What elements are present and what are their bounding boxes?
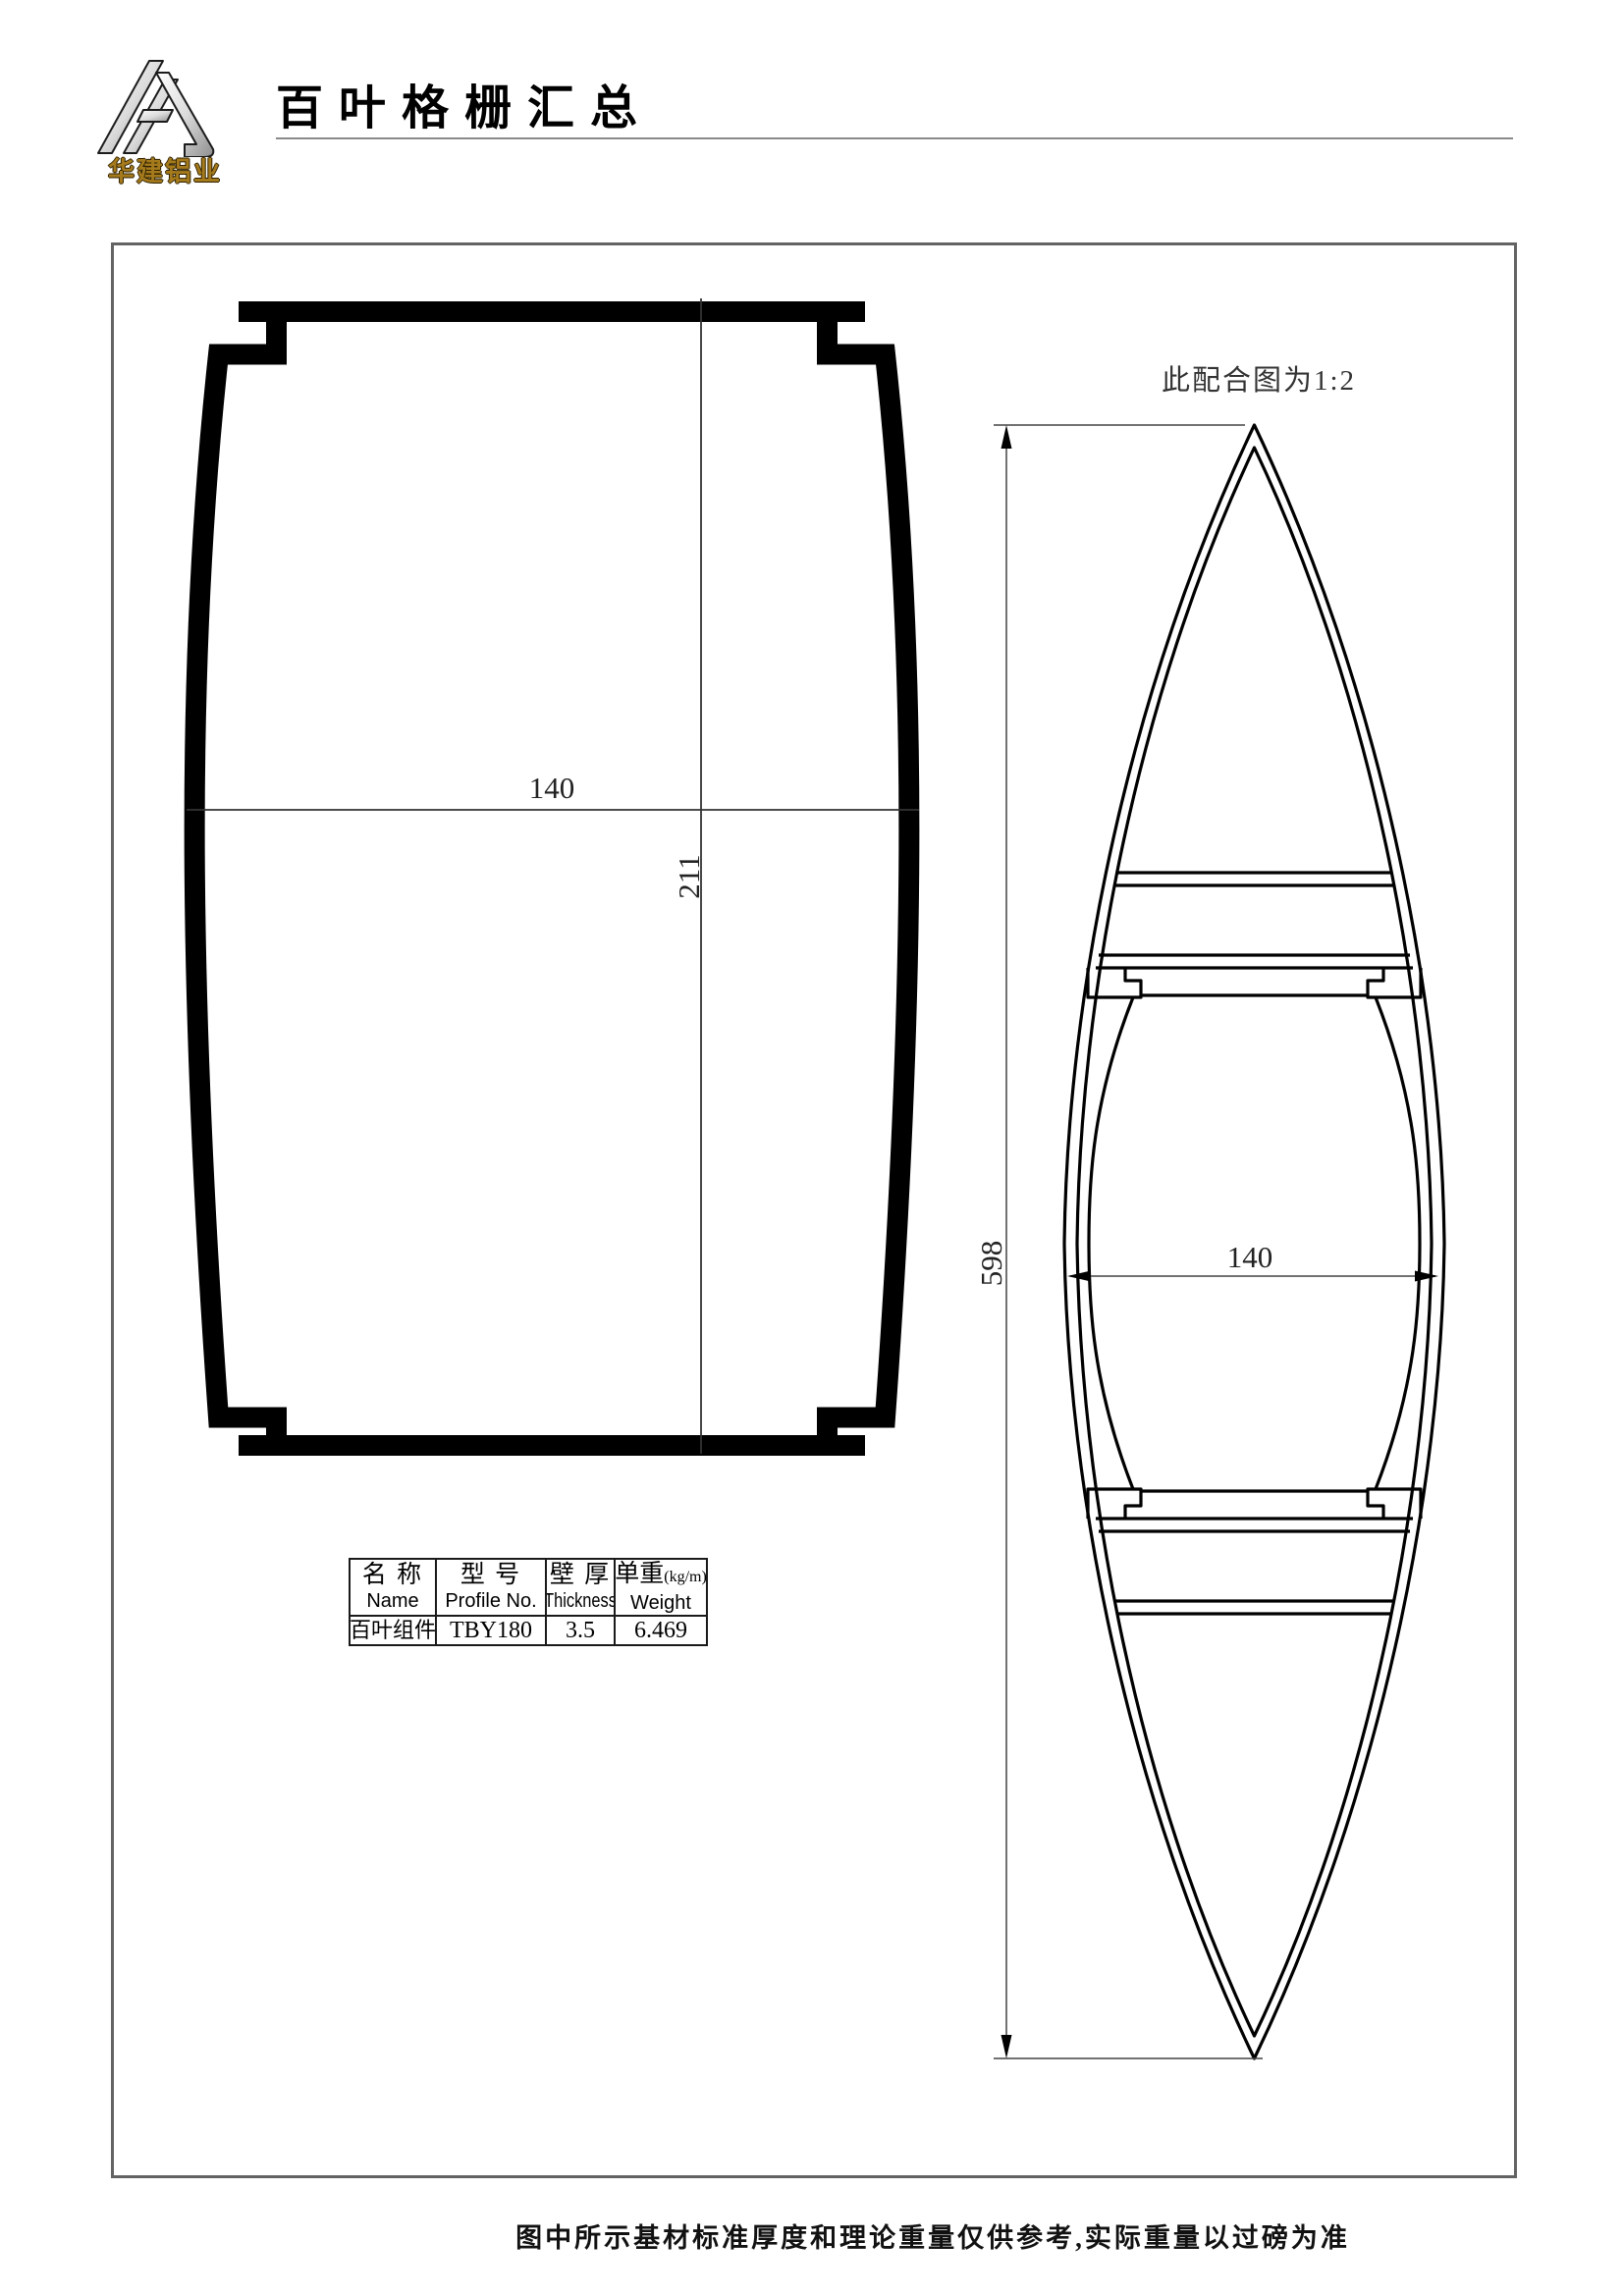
- header-name-en: Name: [366, 1589, 418, 1613]
- spec-table-header-name: 名 称 Name: [351, 1560, 437, 1617]
- spec-table-header-thickness: 壁 厚 Thickness: [547, 1560, 616, 1617]
- header-thickness-en: Thickness: [547, 1589, 616, 1613]
- header-thickness-zh: 壁 厚: [550, 1562, 611, 1589]
- scale-note: 此配合图为1:2: [1162, 357, 1356, 399]
- left-profile-outline: [194, 306, 909, 1451]
- right-profile-width-label: 140: [1201, 1240, 1299, 1275]
- spec-cell-thickness: 3.5: [547, 1617, 616, 1644]
- spec-cell-name: 百叶组件: [351, 1617, 437, 1644]
- right-profile-height-label: 598: [974, 1224, 1005, 1303]
- left-profile-width-label: 140: [503, 771, 601, 806]
- header-profile-en: Profile No.: [445, 1589, 536, 1613]
- profile-drawings-svg: [0, 0, 1623, 2296]
- left-profile-height-label: 211: [672, 837, 703, 916]
- spec-table-header-weight: 单重(kg/m) Weight: [616, 1560, 706, 1617]
- spec-table-header-profile-no: 型 号 Profile No.: [437, 1560, 547, 1617]
- left-profile-dimension-lines: [187, 298, 919, 1454]
- header-weight-en: Weight: [630, 1591, 691, 1615]
- header-profile-zh: 型 号: [460, 1562, 521, 1589]
- spec-cell-weight: 6.469: [616, 1617, 706, 1644]
- header-weight-unit: (kg/m): [664, 1569, 706, 1585]
- footer-note: 图中所示基材标准厚度和理论重量仅供参考,实际重量以过磅为准: [393, 2216, 1473, 2255]
- spec-table: 名 称 Name 型 号 Profile No. 壁 厚 Thickness 单…: [349, 1558, 708, 1646]
- header-weight-zh: 单重(kg/m): [616, 1561, 706, 1591]
- header-name-zh: 名 称: [362, 1562, 423, 1589]
- drawing-sheet: 华建铝业 百叶格栅汇总: [0, 0, 1623, 2296]
- spec-cell-profile-no: TBY180: [437, 1617, 547, 1644]
